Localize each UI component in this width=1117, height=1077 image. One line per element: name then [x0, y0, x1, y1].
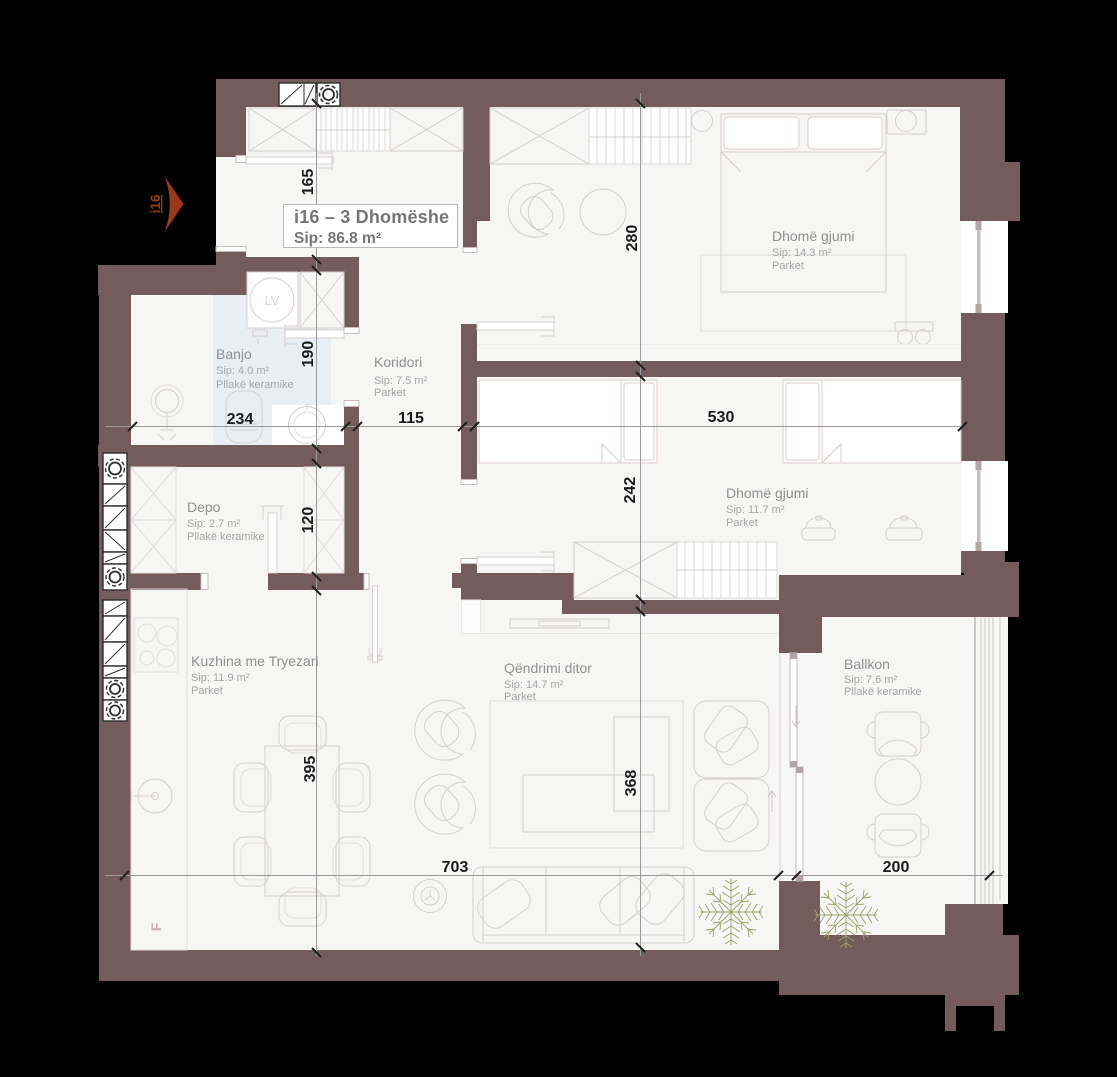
svg-text:Dhomë gjumi: Dhomë gjumi [772, 228, 854, 244]
svg-text:Sip: 11.9 m²: Sip: 11.9 m² [191, 672, 250, 684]
svg-text:115: 115 [398, 410, 424, 427]
svg-text:395: 395 [302, 756, 319, 783]
svg-text:Sip: 7.6 m²: Sip: 7.6 m² [844, 674, 898, 686]
svg-text:Ballkon: Ballkon [844, 656, 890, 672]
svg-text:368: 368 [623, 770, 640, 797]
svg-text:Depo: Depo [187, 499, 221, 515]
svg-text:Sip: 4.0 m²: Sip: 4.0 m² [216, 365, 270, 377]
svg-text:234: 234 [227, 411, 254, 428]
svg-text:Banjo: Banjo [216, 346, 252, 362]
svg-text:190: 190 [300, 341, 317, 368]
svg-text:Dhomë gjumi: Dhomë gjumi [726, 485, 808, 501]
svg-text:530: 530 [708, 409, 735, 426]
svg-text:LV: LV [265, 293, 280, 308]
svg-text:Pllakë keramike: Pllakë keramike [187, 531, 265, 543]
svg-text:120: 120 [300, 507, 317, 534]
svg-text:i16 – 3 Dhomëshe: i16 – 3 Dhomëshe [294, 207, 449, 227]
svg-text:i16: i16 [148, 194, 163, 213]
svg-text:200: 200 [883, 859, 910, 876]
svg-text:Sip: 7.5 m²: Sip: 7.5 m² [374, 375, 428, 387]
svg-text:Kuzhina me Tryezari: Kuzhina me Tryezari [191, 653, 319, 669]
svg-text:242: 242 [622, 477, 639, 504]
svg-text:280: 280 [624, 225, 641, 252]
svg-text:Parket: Parket [504, 691, 536, 703]
svg-text:Koridori: Koridori [374, 354, 422, 370]
svg-text:Parket: Parket [374, 387, 406, 399]
svg-text:703: 703 [442, 859, 469, 876]
svg-text:Sip: 11.7 m²: Sip: 11.7 m² [726, 504, 785, 516]
svg-text:F: F [148, 922, 164, 931]
svg-text:165: 165 [300, 169, 317, 196]
svg-text:Sip: 2.7 m²: Sip: 2.7 m² [187, 518, 241, 530]
svg-text:Sip: 14.3 m²: Sip: 14.3 m² [772, 247, 832, 259]
svg-text:Pllakë keramike: Pllakë keramike [216, 379, 294, 391]
svg-text:Parket: Parket [191, 685, 223, 697]
svg-text:Pllakë keramike: Pllakë keramike [844, 686, 922, 698]
svg-text:Qëndrimi ditor: Qëndrimi ditor [504, 660, 592, 676]
svg-text:Parket: Parket [726, 517, 758, 529]
svg-text:Sip: 14.7 m²: Sip: 14.7 m² [504, 679, 564, 691]
svg-text:Sip: 86.8 m²: Sip: 86.8 m² [294, 230, 381, 247]
svg-text:Parket: Parket [772, 260, 804, 272]
